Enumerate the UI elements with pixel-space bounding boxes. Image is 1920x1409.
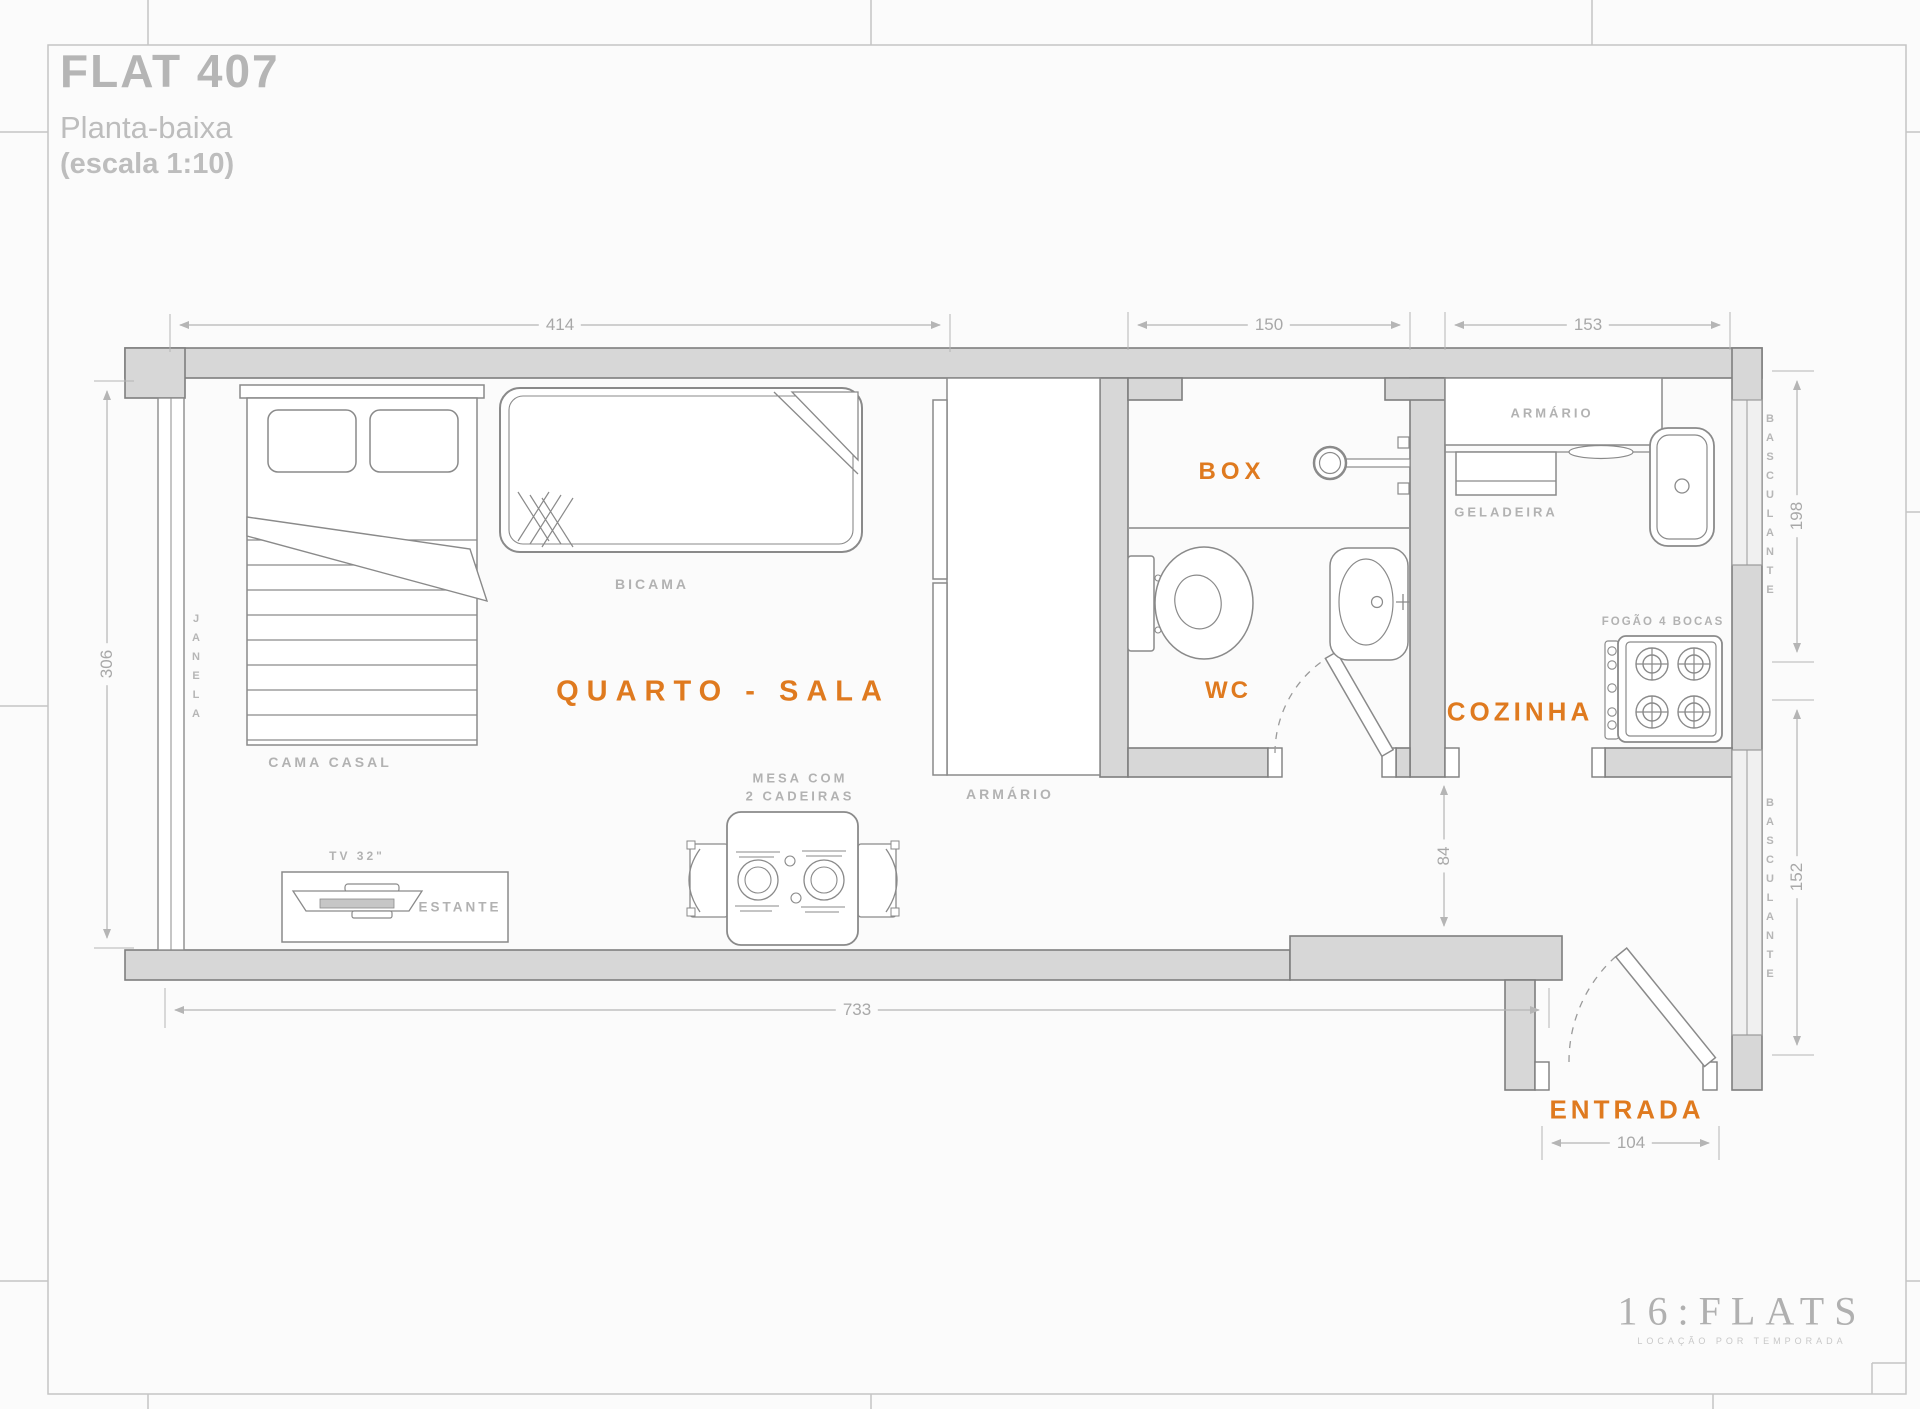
pillow — [370, 410, 458, 472]
label-cama-casal: CAMA CASAL — [268, 754, 392, 770]
label-armario-quarto: ARMÁRIO — [966, 786, 1054, 802]
label-basculante-inferior: BASCULANTE — [1764, 797, 1776, 987]
wall-box-tab-left — [1128, 378, 1182, 400]
dim-quarto-largura: 414 — [539, 315, 581, 335]
toilet — [1128, 547, 1253, 659]
wall-entry-stub — [1505, 980, 1535, 1090]
fridge — [1456, 452, 1556, 495]
label-mesa-linha1: MESA COM — [752, 771, 847, 786]
room-label-box: BOX — [1198, 458, 1265, 486]
furniture-graphics — [240, 378, 1722, 945]
label-fogao: FOGÃO 4 BOCAS — [1602, 616, 1724, 628]
pillow — [268, 410, 356, 472]
wall-wc-bottom-b — [1396, 748, 1410, 777]
brand-logo: 16:FLATS — [1618, 1288, 1867, 1335]
room-label-entrada: ENTRADA — [1549, 1095, 1704, 1126]
shower-arm — [1344, 459, 1410, 467]
label-mesa-linha2: 2 CADEIRAS — [746, 789, 855, 804]
stove — [1605, 636, 1722, 742]
wall-wc-bottom-a — [1128, 748, 1268, 777]
room-label-quarto-sala: QUARTO - SALA — [556, 676, 890, 709]
page-title: FLAT 407 — [60, 44, 280, 98]
label-janela: JANELA — [190, 613, 202, 727]
label-bicama: BICAMA — [615, 576, 689, 592]
dim-passagem-altura: 84 — [1434, 840, 1454, 873]
wardrobe-quarto — [933, 378, 1100, 775]
wall-box-tab-right — [1385, 378, 1445, 400]
entrance-door — [1569, 948, 1715, 1066]
basculante-window-upper — [1732, 400, 1762, 565]
wall-top — [125, 348, 1762, 378]
dim-entrada-largura: 104 — [1610, 1133, 1652, 1153]
dim-total-largura: 733 — [836, 1000, 878, 1020]
wall-quarto-wc — [1100, 378, 1128, 777]
wall-wc-cozinha — [1410, 378, 1445, 777]
wc-door — [1275, 652, 1393, 756]
brand-tagline: LOCAÇÃO POR TEMPORADA — [1637, 1336, 1846, 1346]
double-bed — [240, 385, 487, 745]
chair-right — [858, 841, 899, 917]
chair-left — [687, 841, 728, 917]
dining-table — [687, 812, 899, 945]
floor-plan — [0, 0, 1920, 1409]
label-tv: TV 32" — [329, 849, 385, 863]
room-label-cozinha: COZINHA — [1447, 697, 1593, 728]
dim-cozinha-largura: 153 — [1567, 315, 1609, 335]
dim-corredor-altura: 152 — [1787, 856, 1807, 898]
kitchen-sink — [1650, 428, 1714, 546]
page-subtitle: Planta-baixa — [60, 110, 232, 146]
wall-bottom-left — [125, 950, 1290, 980]
label-estante: ESTANTE — [418, 900, 501, 915]
label-basculante-superior: BASCULANTE — [1764, 413, 1776, 603]
page-scale: (escala 1:10) — [60, 148, 234, 181]
label-geladeira: GELADEIRA — [1454, 505, 1558, 520]
shower — [1314, 437, 1410, 494]
wall-bottom-right — [1290, 936, 1562, 980]
room-label-wc: WC — [1205, 677, 1251, 705]
janela-window — [158, 398, 184, 950]
dim-quarto-altura: 306 — [97, 643, 117, 685]
basculante-window-lower — [1732, 750, 1762, 1035]
wall-corner-topleft — [125, 348, 185, 398]
door-jambs — [1268, 748, 1717, 1090]
label-armario-cozinha: ARMÁRIO — [1510, 406, 1593, 421]
wall-cozinha-bottom — [1605, 748, 1732, 777]
tv-screen — [320, 899, 394, 908]
dim-wc-largura: 150 — [1248, 315, 1290, 335]
wc-sink — [1330, 548, 1410, 660]
single-bed — [500, 388, 862, 552]
dim-cozinha-altura: 198 — [1787, 495, 1807, 537]
